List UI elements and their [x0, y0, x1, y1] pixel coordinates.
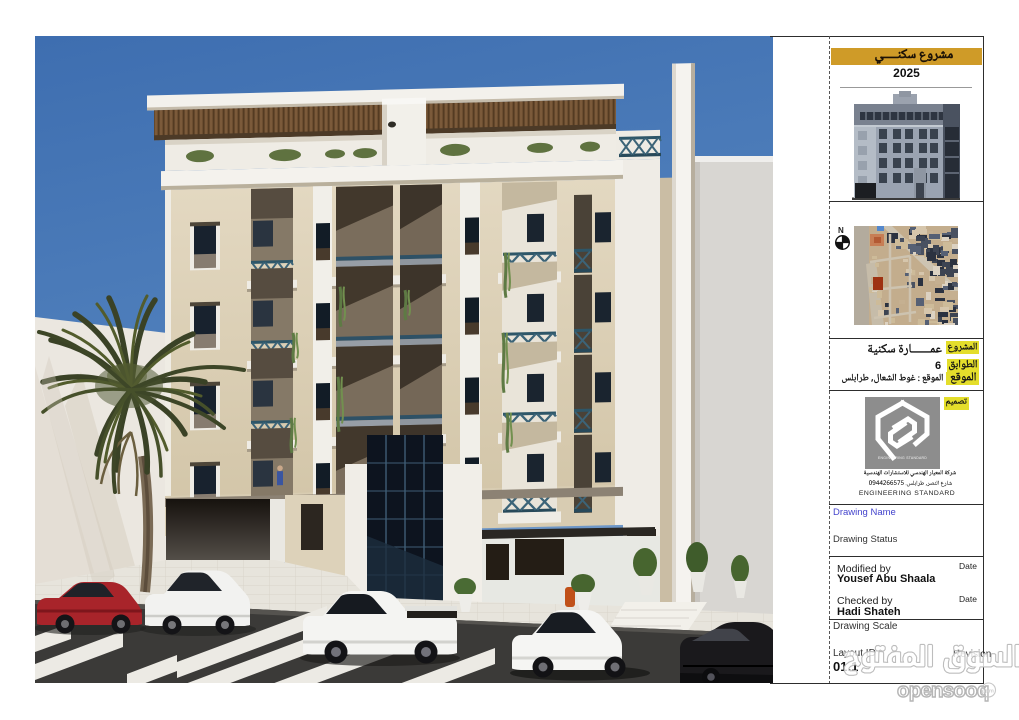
svg-text:opensooq: opensooq	[897, 679, 989, 702]
svg-text:com: com	[982, 689, 994, 695]
